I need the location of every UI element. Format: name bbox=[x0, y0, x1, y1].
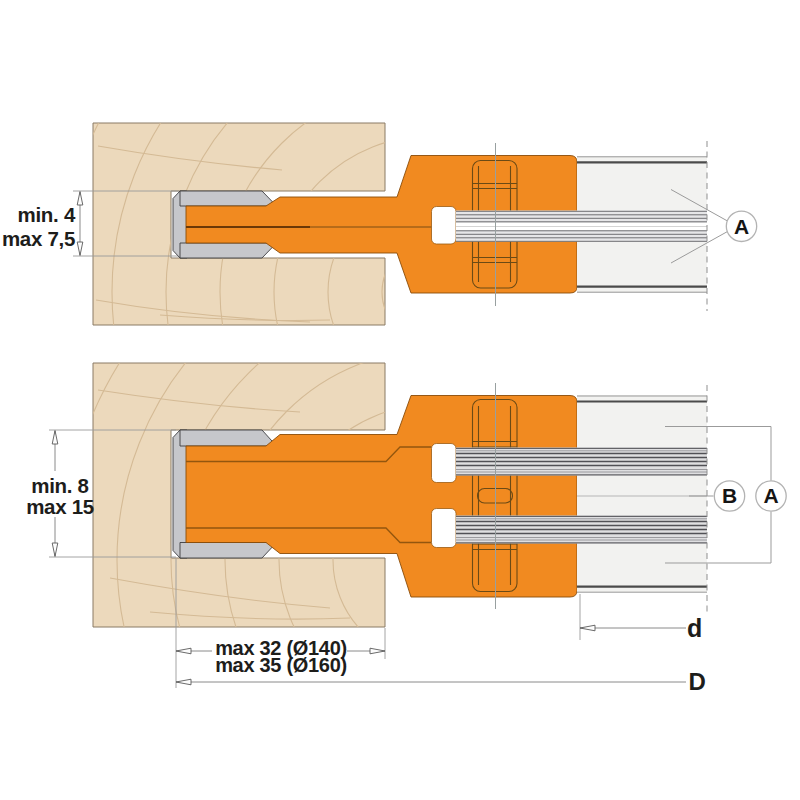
knife-slot-opening-lower bbox=[432, 509, 457, 548]
arrow-left-icon bbox=[176, 679, 191, 685]
groove-width-label-top-1: min. 4 bbox=[18, 203, 76, 226]
tool-diameter-label: D bbox=[688, 668, 705, 695]
knife-slot-opening-upper bbox=[432, 444, 457, 483]
cutter-technical-diagram: min. 4 max 7,5 bbox=[0, 0, 800, 800]
arrow-up-icon bbox=[77, 192, 83, 206]
groove-width-label-top-2: max 7,5 bbox=[2, 227, 75, 250]
upper-knife bbox=[180, 191, 277, 206]
cutting-depth-label-2: max 35 (Ø160) bbox=[215, 654, 347, 676]
callout-a-top-label: A bbox=[734, 215, 749, 238]
arrow-right-icon bbox=[370, 648, 385, 654]
shim-pack-top bbox=[456, 211, 707, 242]
diagram-canvas: min. 4 max 7,5 bbox=[0, 0, 800, 800]
arrow-left-icon bbox=[580, 625, 595, 631]
bore-diameter-label: d bbox=[687, 614, 702, 642]
knife-clamp-bar bbox=[173, 430, 187, 558]
arrow-down-icon bbox=[77, 242, 83, 256]
shim-pack-upper bbox=[456, 448, 707, 476]
groove-width-label-bottom-2: max 15 bbox=[26, 495, 94, 518]
callout-b-label: B bbox=[722, 484, 737, 507]
arrow-down-icon bbox=[52, 543, 58, 557]
arrow-left-icon bbox=[176, 648, 191, 654]
arrow-up-icon bbox=[52, 431, 58, 445]
groove-width-label-bottom-1: min. 8 bbox=[31, 474, 88, 497]
shim-pack-lower bbox=[456, 516, 707, 544]
upper-knife bbox=[180, 430, 277, 446]
knife-slot-opening-top bbox=[432, 207, 457, 245]
callout-a-bottom-label: A bbox=[763, 484, 778, 507]
dim-bore-d: d bbox=[580, 594, 702, 642]
lower-knife bbox=[180, 243, 277, 258]
lower-knife bbox=[180, 543, 277, 559]
